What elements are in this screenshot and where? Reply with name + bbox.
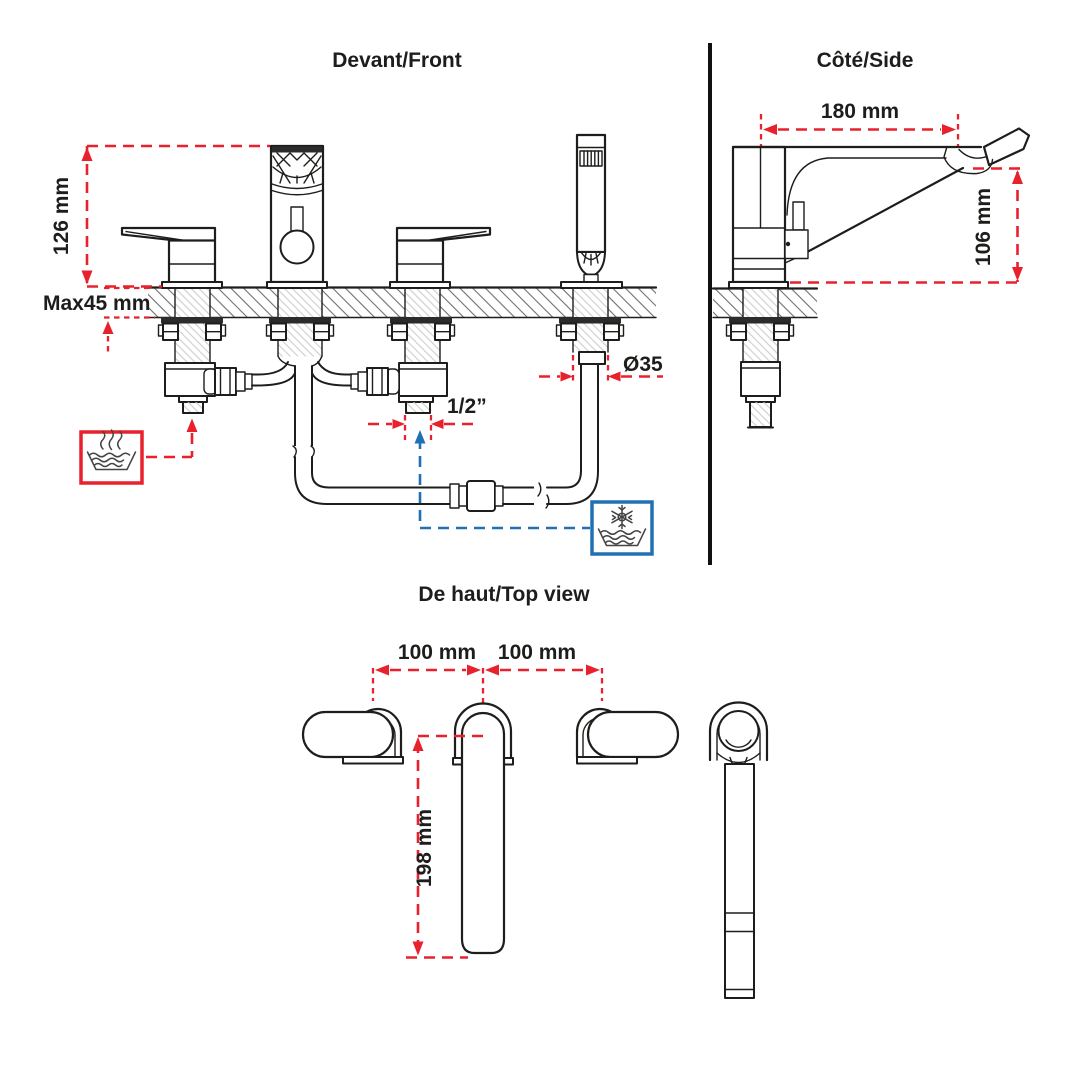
spout-length-label: 198 mm	[413, 809, 436, 887]
spacing-right-label: 100 mm	[498, 641, 576, 664]
shower-hole-label: Ø35	[623, 353, 663, 376]
front-height-label: 126 mm	[50, 177, 73, 255]
front-left-handle	[122, 228, 222, 288]
front-view-title: Devant/Front	[332, 49, 462, 72]
front-view: Devant/Front	[43, 49, 663, 554]
left-valve-body	[165, 362, 295, 413]
top-spout	[453, 704, 513, 953]
front-hand-shower	[561, 135, 622, 288]
faucet-installation-diagram: Devant/Front	[0, 0, 1080, 1080]
deck-thickness-label: Max45 mm	[43, 292, 150, 315]
side-diverter-knob	[793, 202, 804, 230]
top-left-handle	[303, 709, 403, 763]
top-hand-shower	[710, 703, 767, 999]
technical-drawing-canvas: Devant/Front	[0, 0, 1080, 1080]
dim-spout-reach: 180 mm	[761, 100, 958, 147]
diverter-stem	[291, 207, 303, 231]
top-view: De haut/Top view 100 mm 100 mm	[303, 583, 767, 998]
below-deck-plumbing	[159, 289, 624, 512]
front-right-handle	[390, 228, 490, 288]
hose-coupling	[450, 484, 459, 508]
front-spout	[267, 146, 327, 288]
side-view-title: Côté/Side	[817, 49, 914, 72]
right-valve-body	[312, 362, 447, 413]
hot-water-callout	[81, 419, 198, 484]
side-handle-lever	[984, 129, 1029, 166]
supply-connection-label: 1/2”	[447, 395, 487, 418]
spout-reach-label: 180 mm	[821, 100, 899, 123]
diverter-ring	[281, 231, 314, 264]
spout-height-label: 106 mm	[972, 188, 995, 266]
dim-deck-thickness: Max45 mm	[43, 288, 155, 352]
dim-spout-height: 106 mm	[790, 169, 1023, 283]
spacing-left-label: 100 mm	[398, 641, 476, 664]
side-view: Côté/Side 180 mm	[710, 43, 1029, 565]
left-valve-shank	[175, 289, 210, 363]
top-right-handle	[577, 709, 678, 764]
dim-hole-spacing: 100 mm 100 mm	[373, 641, 602, 708]
dim-front-height: 126 mm	[50, 146, 270, 287]
top-view-title: De haut/Top view	[418, 583, 590, 606]
